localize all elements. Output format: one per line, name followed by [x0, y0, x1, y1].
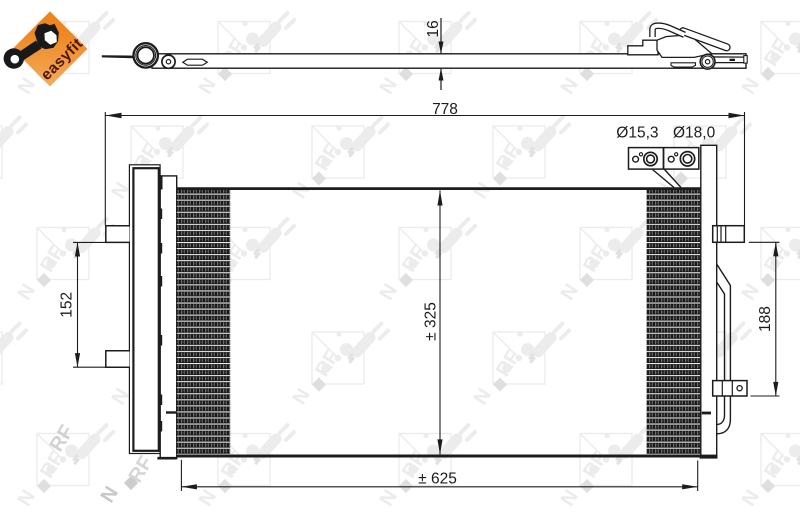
svg-text:Ø18,0: Ø18,0: [673, 125, 716, 142]
svg-text:± 325: ± 325: [423, 302, 440, 341]
svg-text:152: 152: [59, 292, 76, 318]
svg-text:Ø15,3: Ø15,3: [616, 125, 658, 142]
svg-text:778: 778: [432, 101, 458, 118]
svg-text:188: 188: [757, 306, 774, 332]
svg-text:16: 16: [425, 20, 442, 37]
svg-text:± 625: ± 625: [418, 471, 457, 488]
